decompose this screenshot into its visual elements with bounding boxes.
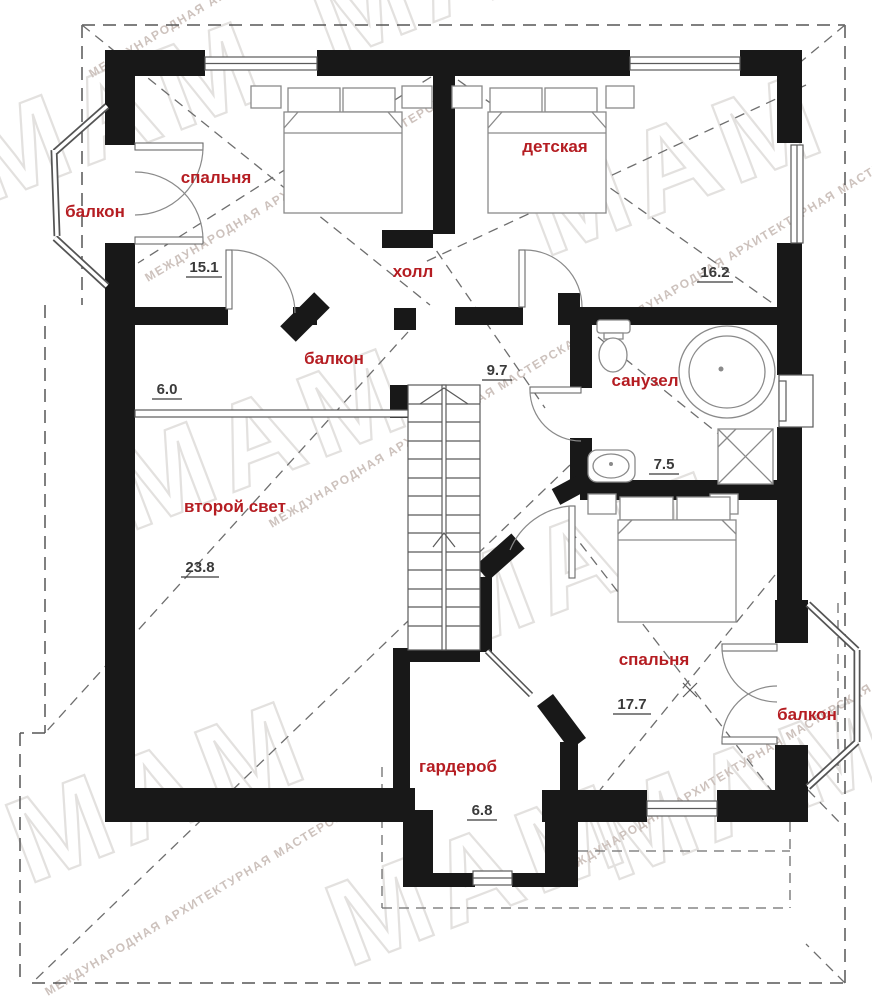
window-bathroom [779,375,813,427]
window-top-right [630,57,740,70]
room-area-hall: 9.7 [487,362,508,379]
room-area-nursery: 16.2 [700,264,729,281]
window-right-side [791,145,803,243]
floor-plan-page: МАМ МАМ МАМ МАМ МАМ МАМ МАМ МАМ МЕЖДУНАР… [0,0,872,1000]
room-label-bedroom-1: спальня [181,168,252,187]
toilet [597,320,630,372]
room-label-balcony-bottom-right: балкон [777,705,837,724]
room-label-inner-balcony: балкон [304,349,364,368]
window-bottom [647,801,717,816]
watermark-logo: МАМ [91,320,429,556]
gallery-railing [135,410,408,417]
room-label-wardrobe: гардероб [419,757,497,776]
staircase [408,385,480,650]
door-bedroom-1 [226,250,295,313]
floor-plan-drawing: МАМ МАМ МАМ МАМ МАМ МАМ МАМ МАМ МЕЖДУНАР… [0,0,872,1000]
room-label-bedroom-2: спальня [619,650,690,669]
room-area-second-light: 23.8 [185,559,214,576]
room-area-wardrobe: 6.8 [472,802,493,819]
room-label-balcony-top-left: балкон [65,202,125,221]
room-area-inner-balcony: 6.0 [157,381,178,398]
room-label-second-light: второй свет [184,497,286,516]
bathtub [679,326,775,418]
window-wardrobe [473,871,512,885]
room-area-bathroom: 7.5 [654,456,675,473]
room-label-bathroom: санузел [611,371,678,390]
room-label-hall: холл [393,262,434,281]
room-label-nursery: детская [522,137,587,156]
door-bathroom [530,387,581,441]
sink [588,450,635,482]
room-area-bedroom-2: 17.7 [617,696,646,713]
room-area-bedroom-1: 15.1 [189,259,218,276]
shower [718,429,773,484]
window-top-left [205,57,317,70]
stair-rail [442,385,446,650]
